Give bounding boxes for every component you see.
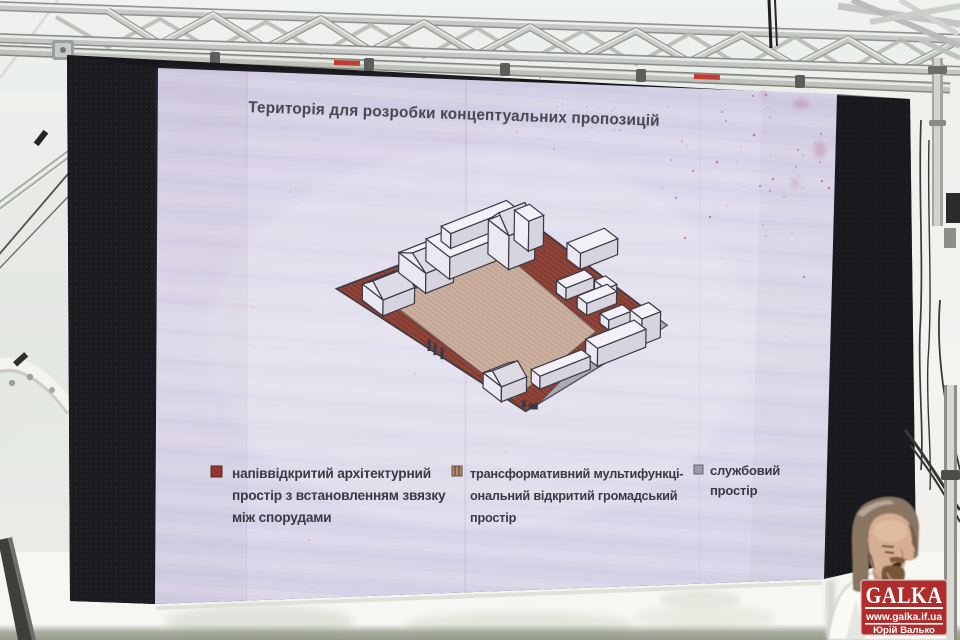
svg-text:між спорудами: між спорудами xyxy=(232,510,331,525)
svg-text:Юрій Валько: Юрій Валько xyxy=(873,625,935,636)
svg-text:простір з встановленням звязку: простір з встановленням звязку xyxy=(232,488,446,503)
svg-text:напіввідкритий архітектурний: напіввідкритий архітектурний xyxy=(232,466,431,481)
svg-text:простір: простір xyxy=(710,483,758,498)
svg-text:простір: простір xyxy=(470,511,517,525)
svg-text:www.galka.if.ua: www.galka.if.ua xyxy=(865,612,942,623)
svg-text:ональний відкритий громадський: ональний відкритий громадський xyxy=(470,489,677,503)
svg-text:службовий: службовий xyxy=(710,463,780,478)
svg-text:GALKA: GALKA xyxy=(866,583,943,608)
svg-text:трансформативний мультифункці-: трансформативний мультифункці- xyxy=(470,467,683,481)
